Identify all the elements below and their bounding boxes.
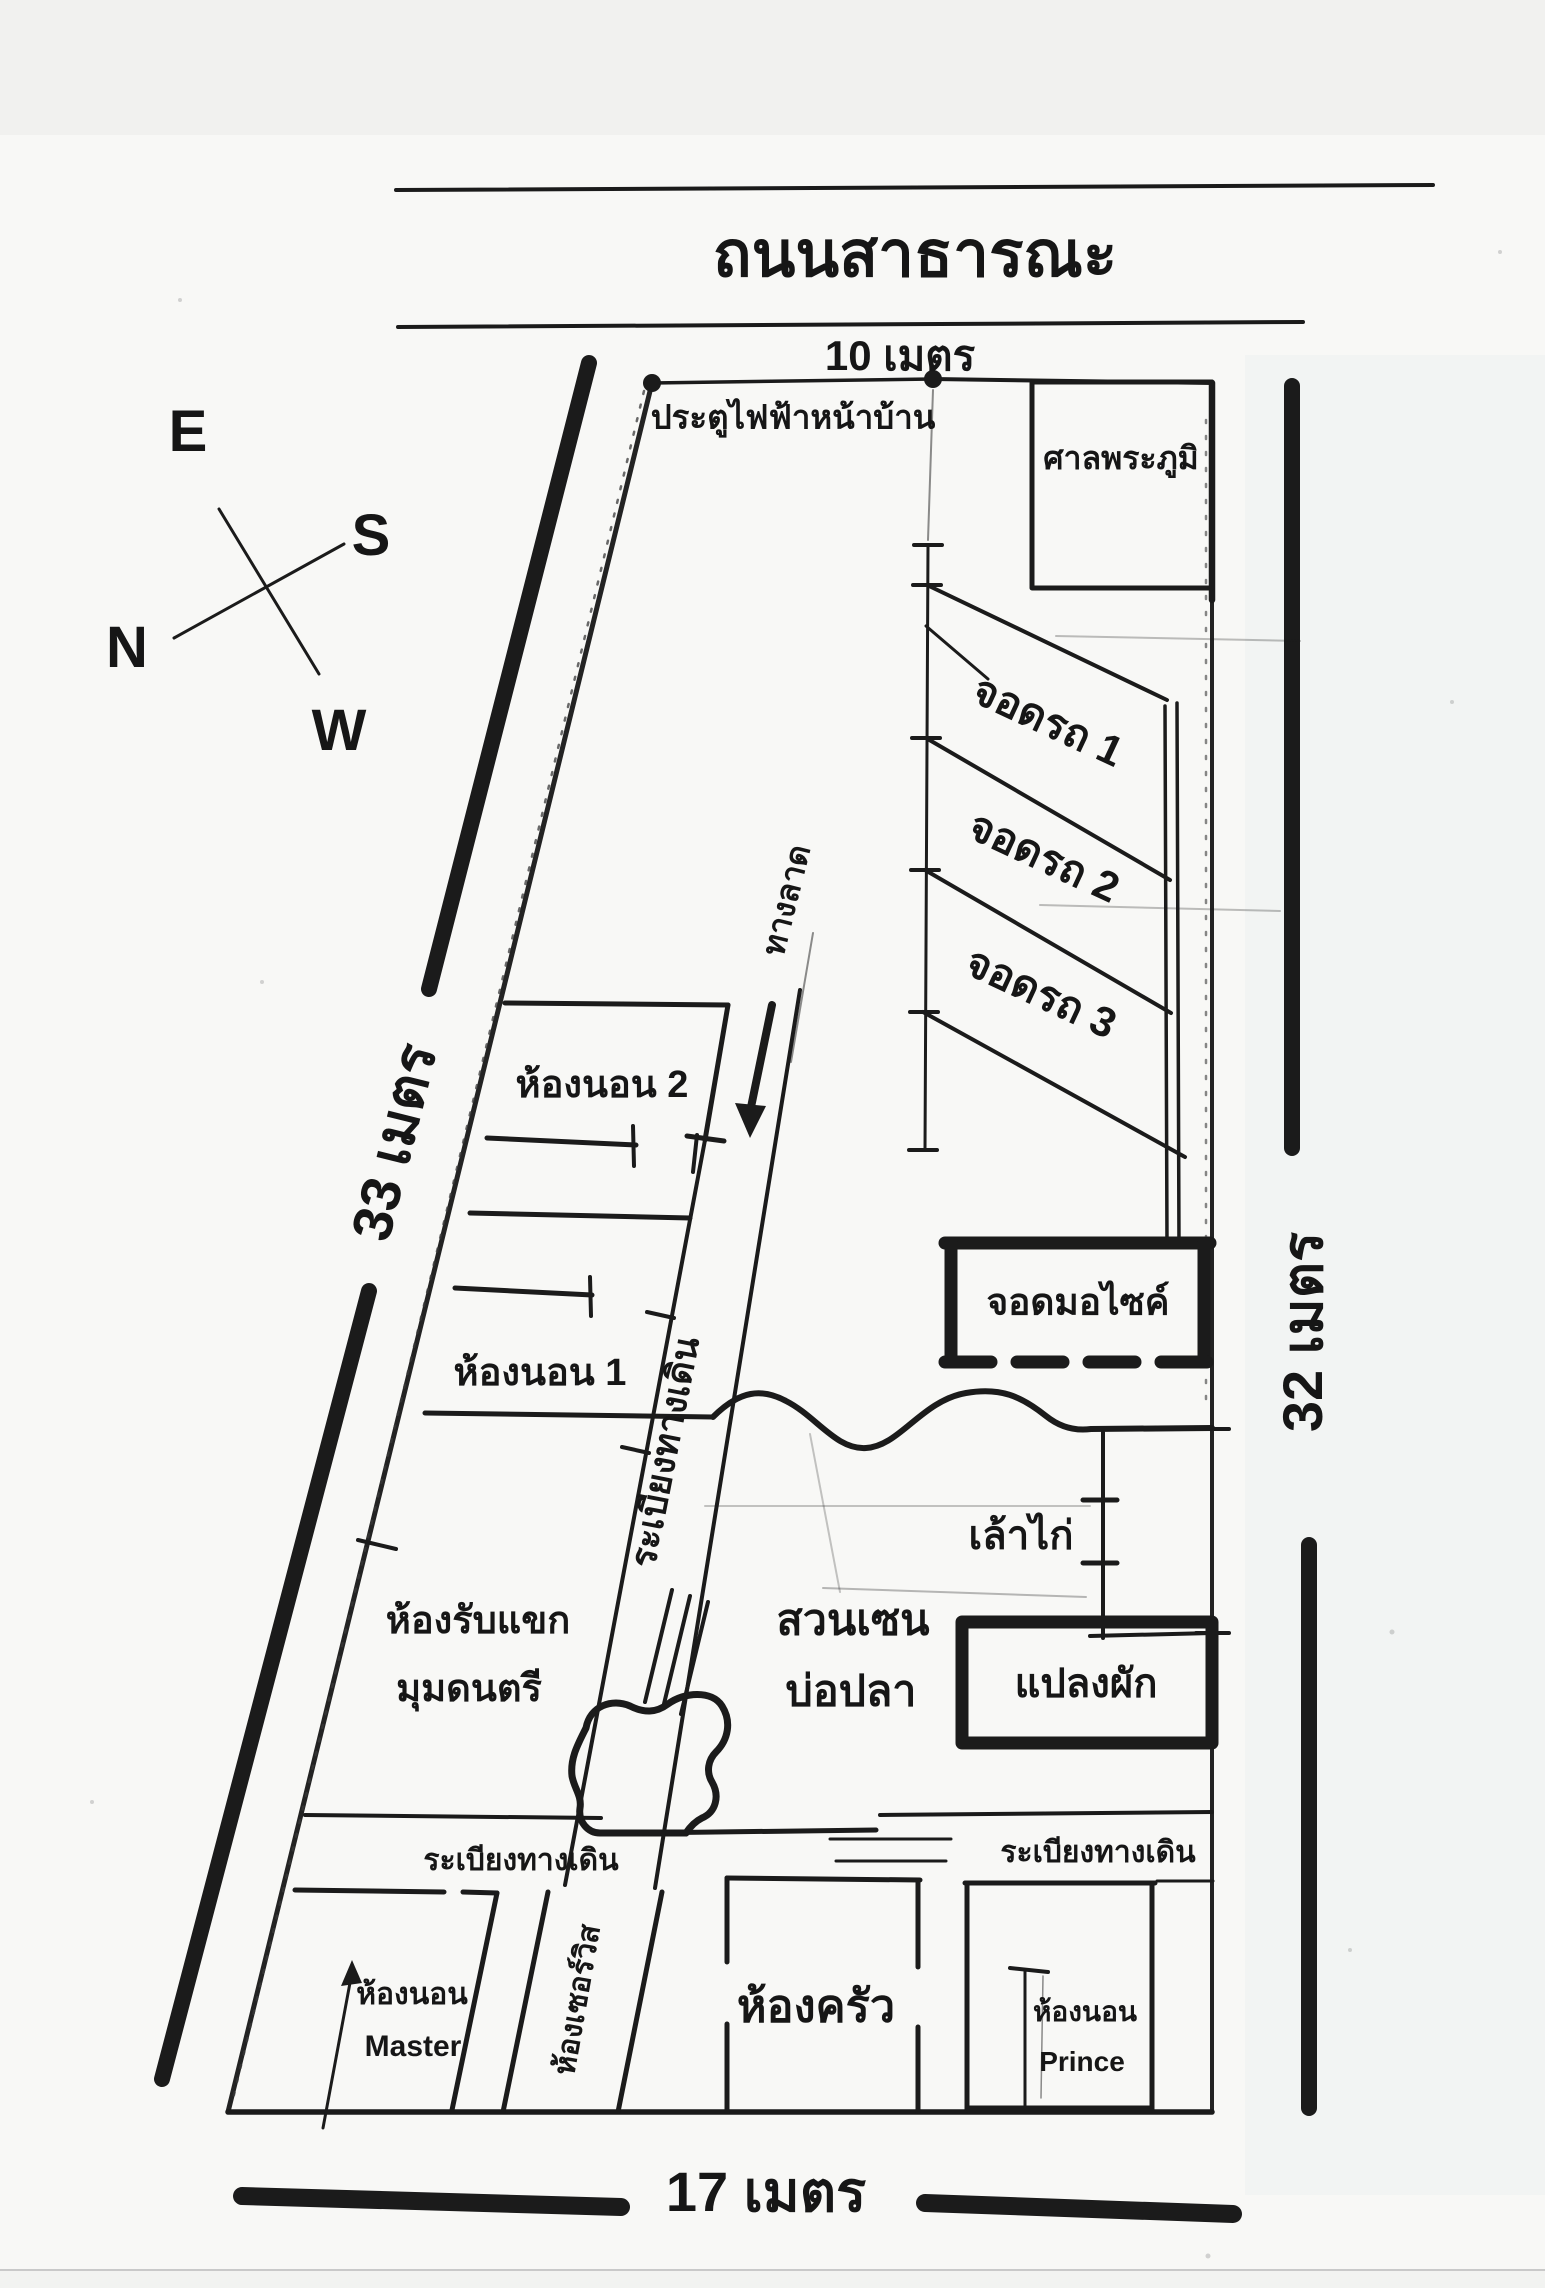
prince-inner-faint xyxy=(1041,1976,1043,2098)
service-left-wall xyxy=(503,1892,548,2112)
door-stub-right xyxy=(693,1135,697,1172)
walkway-tick-1 xyxy=(647,1312,674,1318)
dimension-bar-left-upper xyxy=(429,363,589,989)
partition-middle xyxy=(470,1213,690,1218)
motorcycle-parking-label: จอดมอไซค์ xyxy=(986,1284,1169,1321)
gate-label: ประตูไฟฟ้าหน้าบ้าน xyxy=(651,401,936,434)
gate-entry-diagonal xyxy=(926,626,988,679)
compass-south-label: S xyxy=(352,507,391,565)
pond-base-line xyxy=(640,1830,876,1833)
coop-bottom-wall xyxy=(1090,1633,1212,1636)
living-room-bottom-wall xyxy=(305,1815,601,1818)
wavy-garden-line xyxy=(713,1391,1212,1448)
walkway-right-faint xyxy=(791,933,813,1062)
partition-bedroom2 xyxy=(487,1138,636,1145)
coop-ticks xyxy=(1083,1500,1117,1563)
west-wing-top-wall xyxy=(505,1003,728,1005)
partition-bedroom1-cap xyxy=(590,1277,591,1316)
dimension-bar-bottom-left xyxy=(242,2196,621,2207)
master-bedroom-label-line2: Master xyxy=(365,2032,462,2062)
compass-west-label: W xyxy=(312,702,367,760)
floor-plan-sheet: ถนนสาธารณะ 10 เมตร E S N W ประตูไฟฟ้าหน้… xyxy=(0,0,1545,2288)
partition-bedroom2-cap xyxy=(633,1126,634,1166)
kitchen-label: ห้องครัว xyxy=(737,1984,895,2029)
bedroom2-label: ห้องนอน 2 xyxy=(516,1066,689,1104)
parking-left-edge xyxy=(925,545,928,1150)
compass-cross-ew xyxy=(219,509,319,674)
compass-east-label: E xyxy=(169,403,208,461)
ramp-arrow-head xyxy=(735,1103,766,1138)
service-right-wall xyxy=(618,1892,662,2112)
living-room-door-tick xyxy=(358,1540,396,1549)
master-bedroom-label-line1: ห้องนอน xyxy=(356,1980,467,2010)
plan-linework xyxy=(0,0,1545,2288)
walkway-right-label: ระเบียงทางเดิน xyxy=(1000,1838,1195,1868)
dimension-right-label: 32 เมตร xyxy=(1275,1232,1331,1432)
parking-divider-1 xyxy=(927,585,1167,700)
road-line-top xyxy=(396,185,1433,190)
master-top-wall-a xyxy=(295,1890,444,1892)
compass-cross-ns xyxy=(174,544,344,638)
dimension-bar-bottom-right xyxy=(925,2203,1233,2214)
walkway-left-label: ระเบียงทางเดิน xyxy=(423,1846,618,1876)
road-line-bottom xyxy=(398,322,1303,327)
living-room-label-line2: มุมดนตรี xyxy=(396,1670,542,1708)
plot-boundary-top-gate xyxy=(652,379,933,383)
partition-bedroom1 xyxy=(455,1288,592,1295)
veranda-right-line xyxy=(880,1812,1212,1815)
vegetable-plot-label: แปลงผัก xyxy=(1015,1664,1158,1704)
parking-back-wall-double xyxy=(1165,703,1179,1246)
zen-garden-label-line2: บ่อปลา xyxy=(786,1671,917,1714)
zen-garden-label-line1: สวนเซน xyxy=(776,1600,929,1643)
spirit-house-box xyxy=(1032,382,1212,588)
master-door-arrow-line xyxy=(323,1972,352,2128)
master-top-wall-b xyxy=(463,1892,497,1893)
bedroom1-label: ห้องนอน 1 xyxy=(454,1354,627,1392)
road-width-label: 10 เมตร xyxy=(825,335,975,377)
road-title: ถนนสาธารณะ xyxy=(713,222,1117,286)
pencil-guide-mid xyxy=(1040,905,1280,911)
spirit-house-label: ศาลพระภูมิ xyxy=(1043,442,1199,474)
prince-bedroom-label-line1: ห้องนอน xyxy=(1033,1998,1137,2026)
living-room-label-line1: ห้องรับแขก xyxy=(386,1602,570,1640)
zen-guide-3 xyxy=(810,1434,840,1592)
dimension-bottom-label: 17 เมตร xyxy=(666,2164,866,2220)
parking-divider-4 xyxy=(923,1012,1185,1157)
ramp-arrow-line xyxy=(750,1005,772,1112)
west-wing-right-wall xyxy=(705,1005,728,1140)
chicken-coop-label: เล้าไก่ xyxy=(969,1516,1074,1556)
gate-post-left xyxy=(643,374,661,392)
compass-north-label: N xyxy=(106,619,148,677)
prince-bedroom-label-line2: Prince xyxy=(1039,2048,1125,2076)
prince-inner-cap xyxy=(1010,1968,1048,1972)
pencil-guide-upper xyxy=(1056,636,1300,641)
kitchen-top-wall xyxy=(727,1878,920,1880)
